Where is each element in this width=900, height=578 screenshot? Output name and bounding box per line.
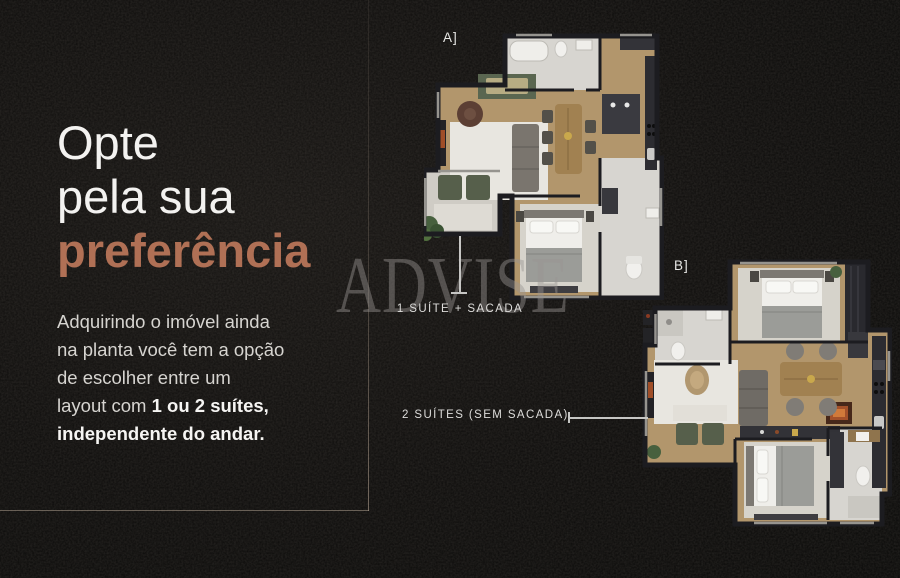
plan-a-connector-tick [451, 292, 467, 294]
plan-a-caption: 1 SUÍTE + SACADA [396, 303, 524, 315]
plan-a-label: A] [443, 30, 458, 45]
body-line-4-bold: 1 ou 2 suítes, [152, 395, 269, 416]
floor-plan-b-drawing [642, 256, 892, 532]
body-line-2: na planta você tem a opção [57, 336, 310, 364]
panel-divider-horizontal [0, 510, 369, 511]
plan-a-connector-line [459, 236, 461, 293]
plan-b-label: B] [674, 258, 689, 273]
body-line-4-normal: layout com [57, 395, 152, 416]
body-copy: Adquirindo o imóvel ainda na planta você… [57, 308, 310, 448]
floor-plan-b [642, 256, 892, 537]
page-title: Opte pela sua preferência [57, 116, 310, 278]
left-text-panel: Opte pela sua preferência Adquirindo o i… [57, 116, 310, 448]
title-line-1: Opte [57, 116, 310, 170]
body-line-4: layout com 1 ou 2 suítes, [57, 392, 310, 420]
body-line-3: de escolher entre um [57, 364, 310, 392]
plan-b-caption: 2 SUÍTES (SEM SACADA) [402, 409, 569, 421]
slide: Opte pela sua preferência Adquirindo o i… [0, 0, 900, 578]
title-line-accent: preferência [57, 224, 310, 278]
body-line-5: independente do andar. [57, 420, 310, 448]
title-line-2: pela sua [57, 170, 310, 224]
body-line-1: Adquirindo o imóvel ainda [57, 308, 310, 336]
plan-b-connector-line [570, 417, 648, 419]
